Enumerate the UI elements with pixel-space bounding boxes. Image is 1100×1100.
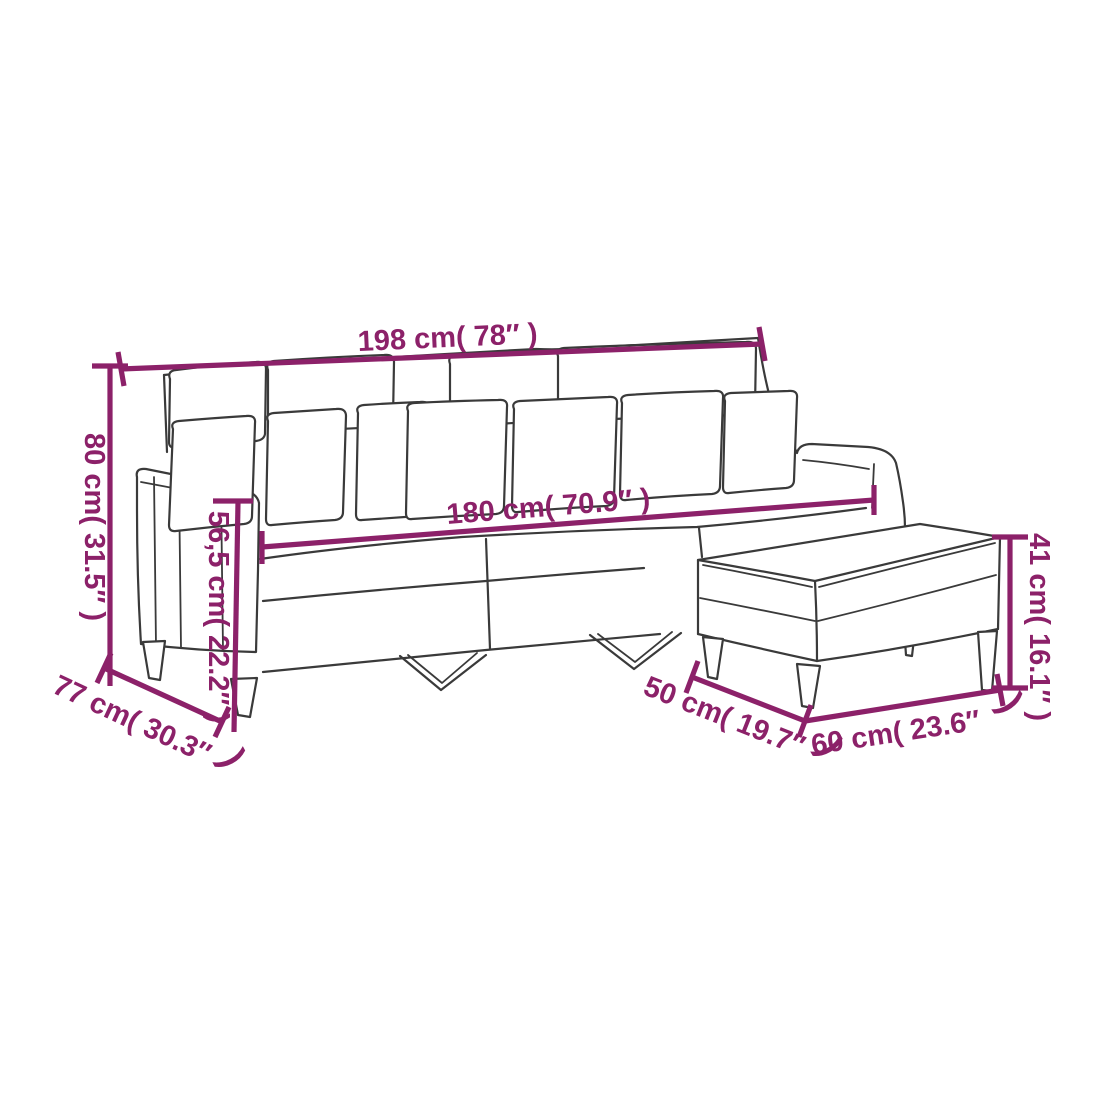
right-armrest <box>797 444 905 540</box>
dim-overall-height: 80 cm( 31.5″ ) <box>78 366 128 686</box>
sofa-leg <box>143 641 165 680</box>
footstool-line-art <box>698 524 1000 708</box>
seat-seam <box>699 528 702 557</box>
dimension-tick <box>118 352 124 386</box>
footstool-leg <box>797 664 820 708</box>
overall-height-label: 80 cm( 31.5″ ) <box>78 433 110 621</box>
seat-cushion-bottom-edge <box>263 568 644 601</box>
footstool-leg <box>978 631 997 691</box>
overall-depth-paren: ) <box>212 743 254 773</box>
footstool-leg <box>703 637 723 679</box>
stool-depth-label: 50 cm( 19.7″ <box>639 671 809 763</box>
throw-pillow <box>266 409 346 525</box>
seat-height-label: 56,5 cm( 22.2″ ) <box>202 511 234 723</box>
seat-seam <box>486 539 490 649</box>
diagram-canvas: 198 cm( 78″ ) 80 cm( 31.5″ ) 77 cm( 30.3… <box>0 0 1100 1100</box>
dim-stool-width: 60 cm( 23.6″ ) <box>805 674 1032 762</box>
overall-depth-label: 77 cm( 30.3″ <box>48 669 216 770</box>
stool-width-label: 60 cm( 23.6″ <box>809 705 982 762</box>
sofa-dimension-diagram: 198 cm( 78″ ) 80 cm( 31.5″ ) 77 cm( 30.3… <box>0 0 1100 1100</box>
sled-leg <box>400 655 486 690</box>
footstool-body <box>698 524 1000 661</box>
throw-pillow <box>723 391 797 493</box>
